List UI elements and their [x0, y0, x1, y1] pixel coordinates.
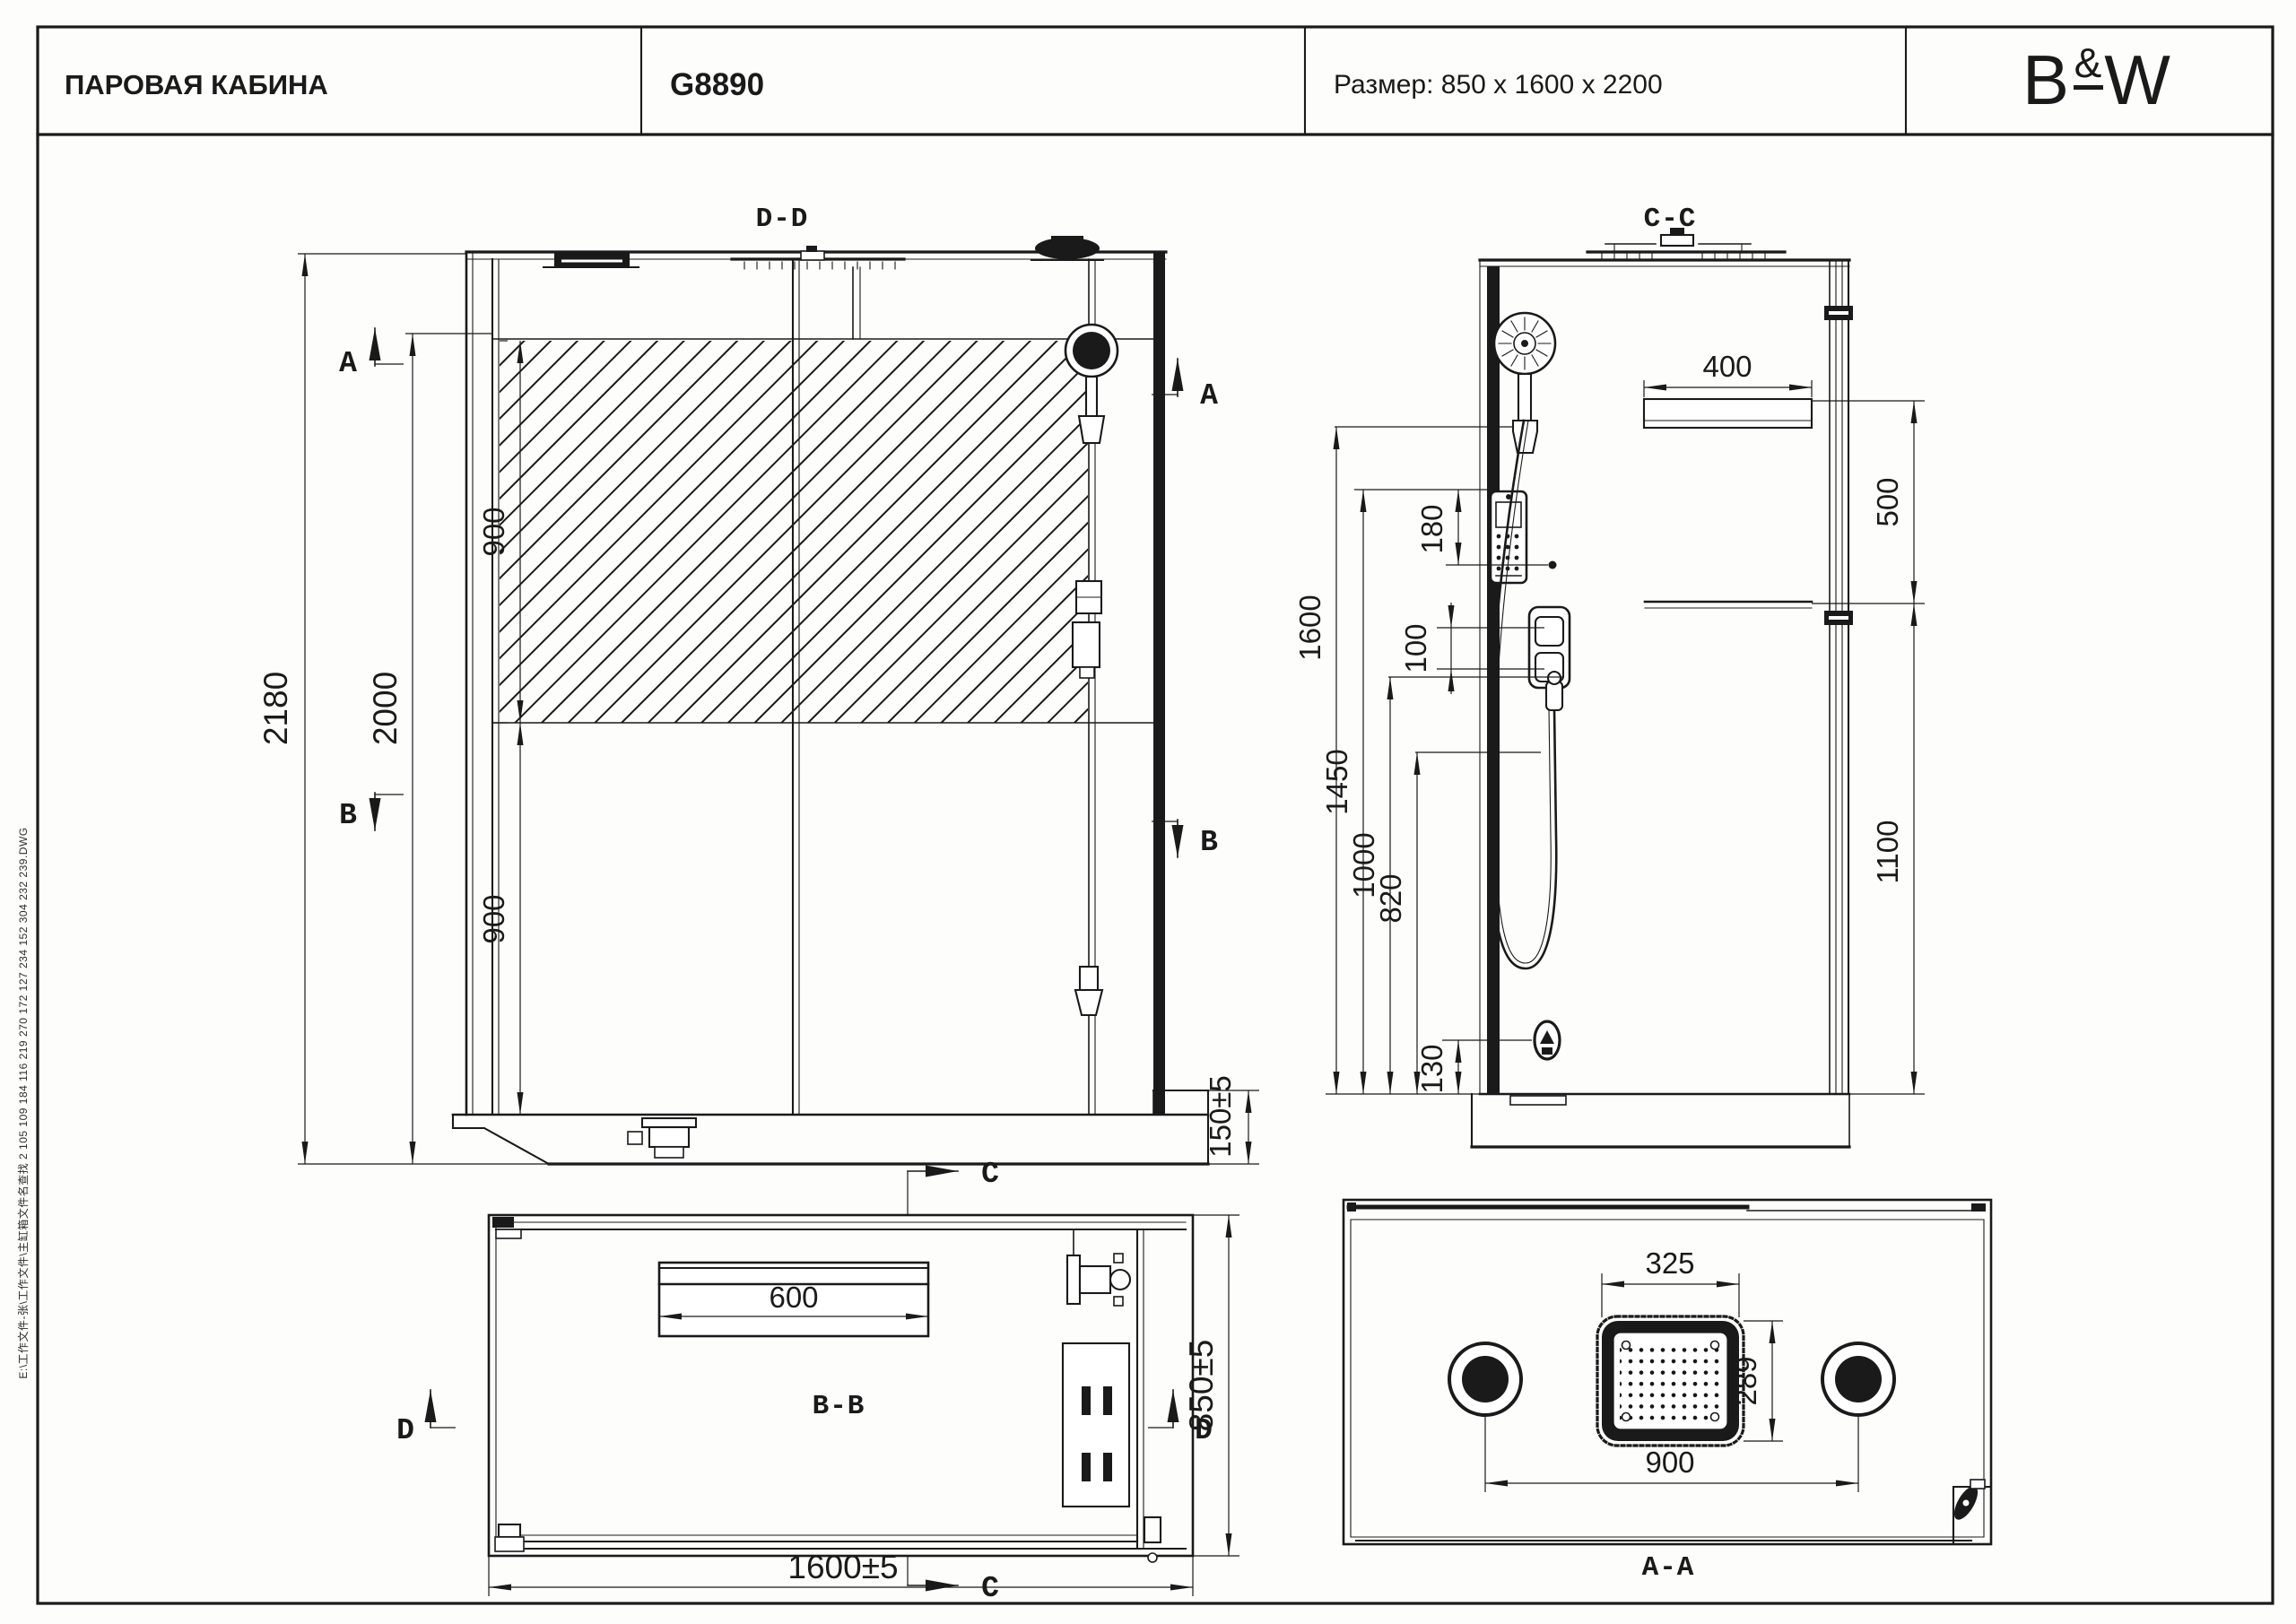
section-b-left: B — [339, 799, 357, 832]
dim-panel-height: 1450 — [1320, 749, 1353, 814]
product-title: ПАРОВАЯ КАБИНА — [65, 69, 328, 100]
dim-head-width: 325 — [1645, 1246, 1694, 1280]
dim-head-depth: 289 — [1729, 1356, 1762, 1405]
side-shelves — [1644, 399, 1812, 608]
dim-glass-lower: 900 — [477, 894, 510, 943]
plan-seat: 600 — [659, 1263, 928, 1336]
side-base — [1472, 1094, 1849, 1147]
dim-speaker-spacing: 900 — [1645, 1446, 1694, 1479]
front-view: D-D — [257, 204, 1259, 1164]
logo-letter-w: W — [2104, 40, 2172, 119]
ceiling-view: A-A — [1344, 1200, 1991, 1584]
section-c-bottom: C — [981, 1572, 999, 1605]
rain-shower-head — [1597, 1316, 1744, 1446]
size-label: Размер: 850 x 1600 x 2200 — [1334, 70, 1663, 100]
front-glass-hatch — [500, 341, 1088, 723]
dim-base-height: 150±5 — [1204, 1075, 1237, 1158]
file-path-note: E:\工作文件-张\工作文件\主缸箱文件名查找 2 105 109 184 11… — [16, 827, 30, 1378]
side-view: C-C — [1293, 204, 1925, 1147]
logo-ampersand: & — [2074, 39, 2102, 86]
ceiling-view-label: A-A — [1642, 1552, 1695, 1584]
plan-view-label: B-B — [813, 1391, 865, 1422]
drawing-sheet: ПАРОВАЯ КАБИНА G8890 Размер: 850 x 1600 … — [0, 0, 2296, 1624]
section-c-top: C — [981, 1158, 999, 1191]
dim-glass-upper: 900 — [477, 507, 510, 556]
logo-letter-b: B — [2022, 40, 2071, 119]
dim-panel-offset: 180 — [1415, 504, 1448, 553]
section-b-right: B — [1200, 826, 1218, 859]
dim-inner-height: 2000 — [367, 672, 404, 745]
dim-steam-outlet-height: 130 — [1415, 1044, 1448, 1093]
dim-shelf-low: 1100 — [1871, 821, 1904, 884]
section-a-left: A — [339, 347, 357, 380]
section-d-left: D — [396, 1414, 414, 1447]
plan-view: B-B 600 — [396, 1158, 1239, 1605]
dim-total-height: 2180 — [257, 672, 294, 745]
section-a-right: A — [1200, 379, 1218, 413]
dim-valve-spacing: 100 — [1399, 623, 1432, 673]
dim-shelf-width: 400 — [1702, 350, 1752, 383]
dim-shelf-spacing: 500 — [1871, 477, 1904, 526]
ceiling-corner-fan — [1950, 1480, 1991, 1544]
front-view-label: D-D — [756, 204, 809, 235]
dim-spout-height: 820 — [1374, 873, 1407, 923]
plan-control-column — [1063, 1343, 1129, 1507]
dim-seat-width: 600 — [769, 1281, 818, 1314]
upper-shelf — [1644, 399, 1812, 428]
dim-hand-shower-height: 1600 — [1293, 595, 1326, 660]
brand-logo: B & W — [2022, 39, 2172, 119]
side-fixtures — [1489, 313, 1570, 1059]
section-d-right: D — [1195, 1414, 1213, 1447]
dim-plan-width: 1600±5 — [787, 1549, 898, 1585]
drawing-canvas: ПАРОВАЯ КАБИНА G8890 Размер: 850 x 1600 … — [0, 0, 2296, 1624]
model-number: G8890 — [670, 67, 764, 102]
